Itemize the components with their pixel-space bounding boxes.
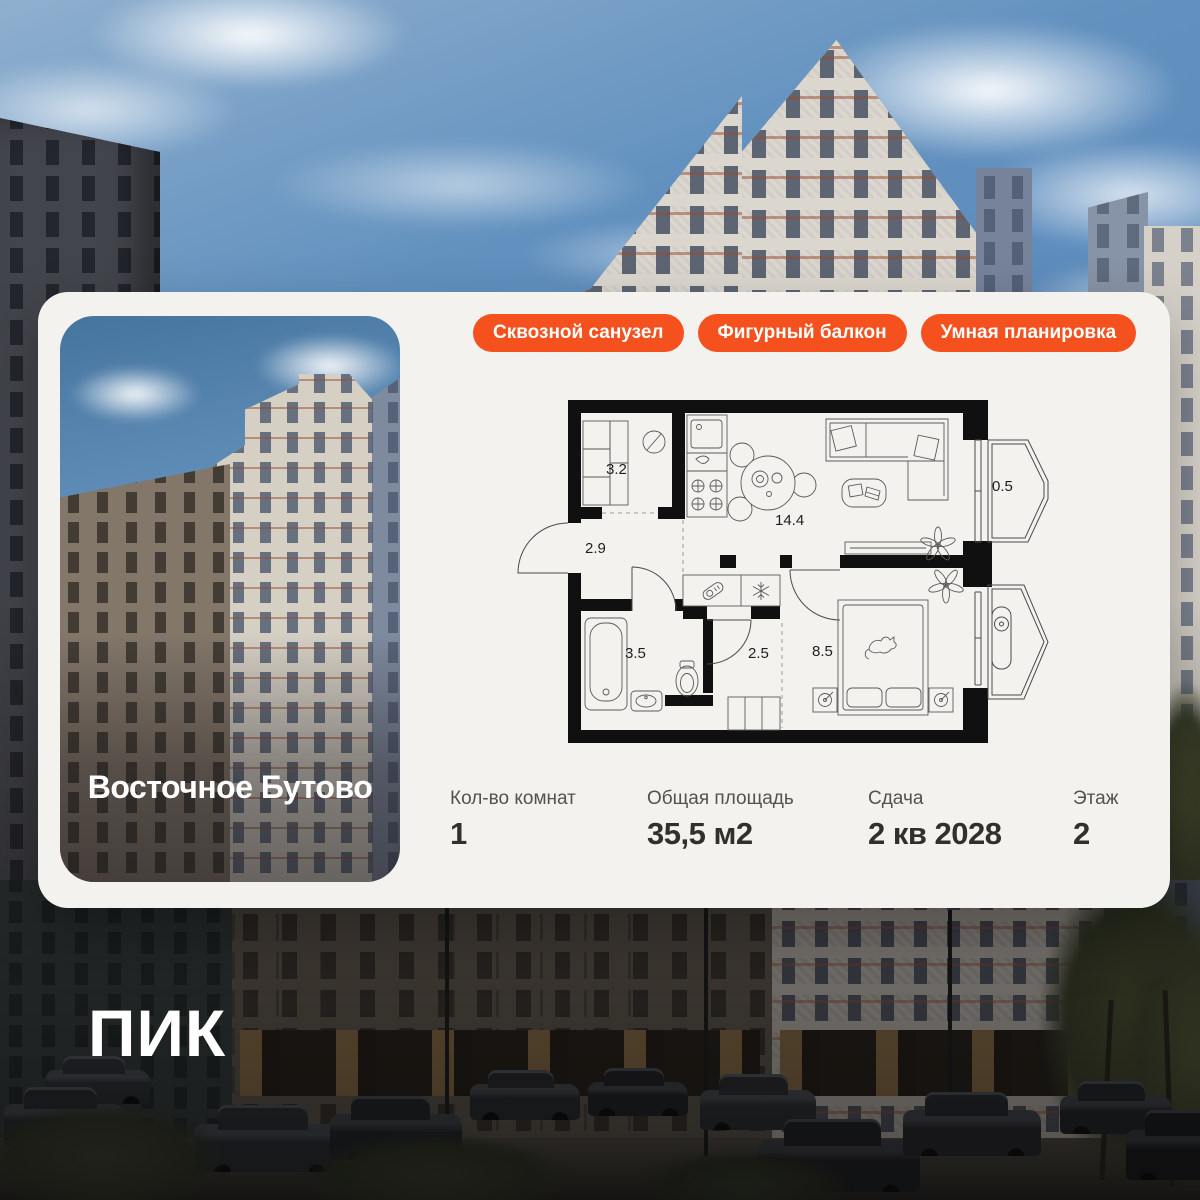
plant-icon xyxy=(928,568,964,603)
bathroom-sink-icon xyxy=(631,691,662,711)
stat-label: Сдача xyxy=(868,788,1002,810)
nightstand-icon xyxy=(929,688,953,712)
stat-floor: Этаж 2 xyxy=(1073,788,1118,852)
badge-walkthrough-bathroom[interactable]: Сквозной санузел xyxy=(473,314,684,352)
stat-delivery: Сдача 2 кв 2028 xyxy=(868,788,1002,852)
ac-unit-icon xyxy=(992,607,1011,669)
stat-value: 35,5 м2 xyxy=(647,816,794,852)
stat-value: 2 xyxy=(1073,816,1118,852)
area-kitchen-living: 14.4 xyxy=(775,512,804,529)
toilet-icon xyxy=(676,661,698,696)
area-hallway: 2.9 xyxy=(585,540,606,557)
snowflake-icon xyxy=(753,582,769,600)
stat-value: 2 кв 2028 xyxy=(868,816,1002,852)
bathtub-icon xyxy=(585,618,627,710)
stat-total-area: Общая площадь 35,5 м2 xyxy=(647,788,794,852)
stat-label: Кол-во комнат xyxy=(450,788,576,810)
area-bathroom: 3.5 xyxy=(625,645,646,662)
ad-creative: Восточное Бутово Сквозной санузел Фигурн… xyxy=(0,0,1200,1200)
sofa-icon xyxy=(826,419,948,500)
area-storage: 3.2 xyxy=(606,461,627,478)
stat-label: Этаж xyxy=(1073,788,1118,810)
bed-icon xyxy=(838,600,928,715)
plan-doors xyxy=(518,523,840,664)
badge-smart-layout[interactable]: Умная планировка xyxy=(921,314,1137,352)
floor-plan: 3.2 2.9 14.4 0.5 3.5 2.5 8.5 xyxy=(515,395,1060,755)
car xyxy=(470,1084,580,1120)
pik-logo: ПИК xyxy=(88,1000,226,1066)
kitchen-icons xyxy=(687,415,727,517)
area-balcony: 0.5 xyxy=(992,478,1013,495)
stat-rooms: Кол-во комнат 1 xyxy=(450,788,576,852)
stat-value: 1 xyxy=(450,816,576,852)
utility-alcove xyxy=(683,575,780,606)
stat-label: Общая площадь xyxy=(647,788,794,810)
area-hall: 2.5 xyxy=(748,645,769,662)
listing-card: Восточное Бутово Сквозной санузел Фигурн… xyxy=(38,292,1170,908)
tv-bench-icon xyxy=(845,542,931,554)
project-name: Восточное Бутово xyxy=(60,769,400,806)
feature-badges: Сквозной санузел Фигурный балкон Умная п… xyxy=(473,314,1136,352)
hall-cabinet-icon xyxy=(728,697,780,730)
dining-table-icon xyxy=(728,443,816,521)
project-photo-card: Восточное Бутово xyxy=(60,316,400,882)
nightstand-icon xyxy=(813,688,837,712)
car xyxy=(903,1110,1041,1156)
car xyxy=(1126,1130,1200,1180)
car xyxy=(588,1082,688,1116)
washing-machine-icon xyxy=(701,581,725,602)
cloud xyxy=(270,140,650,230)
cat-icon xyxy=(865,637,896,659)
coffee-table-icon xyxy=(842,479,886,507)
area-bedroom: 8.5 xyxy=(812,643,833,660)
badge-shaped-balcony[interactable]: Фигурный балкон xyxy=(698,314,907,352)
